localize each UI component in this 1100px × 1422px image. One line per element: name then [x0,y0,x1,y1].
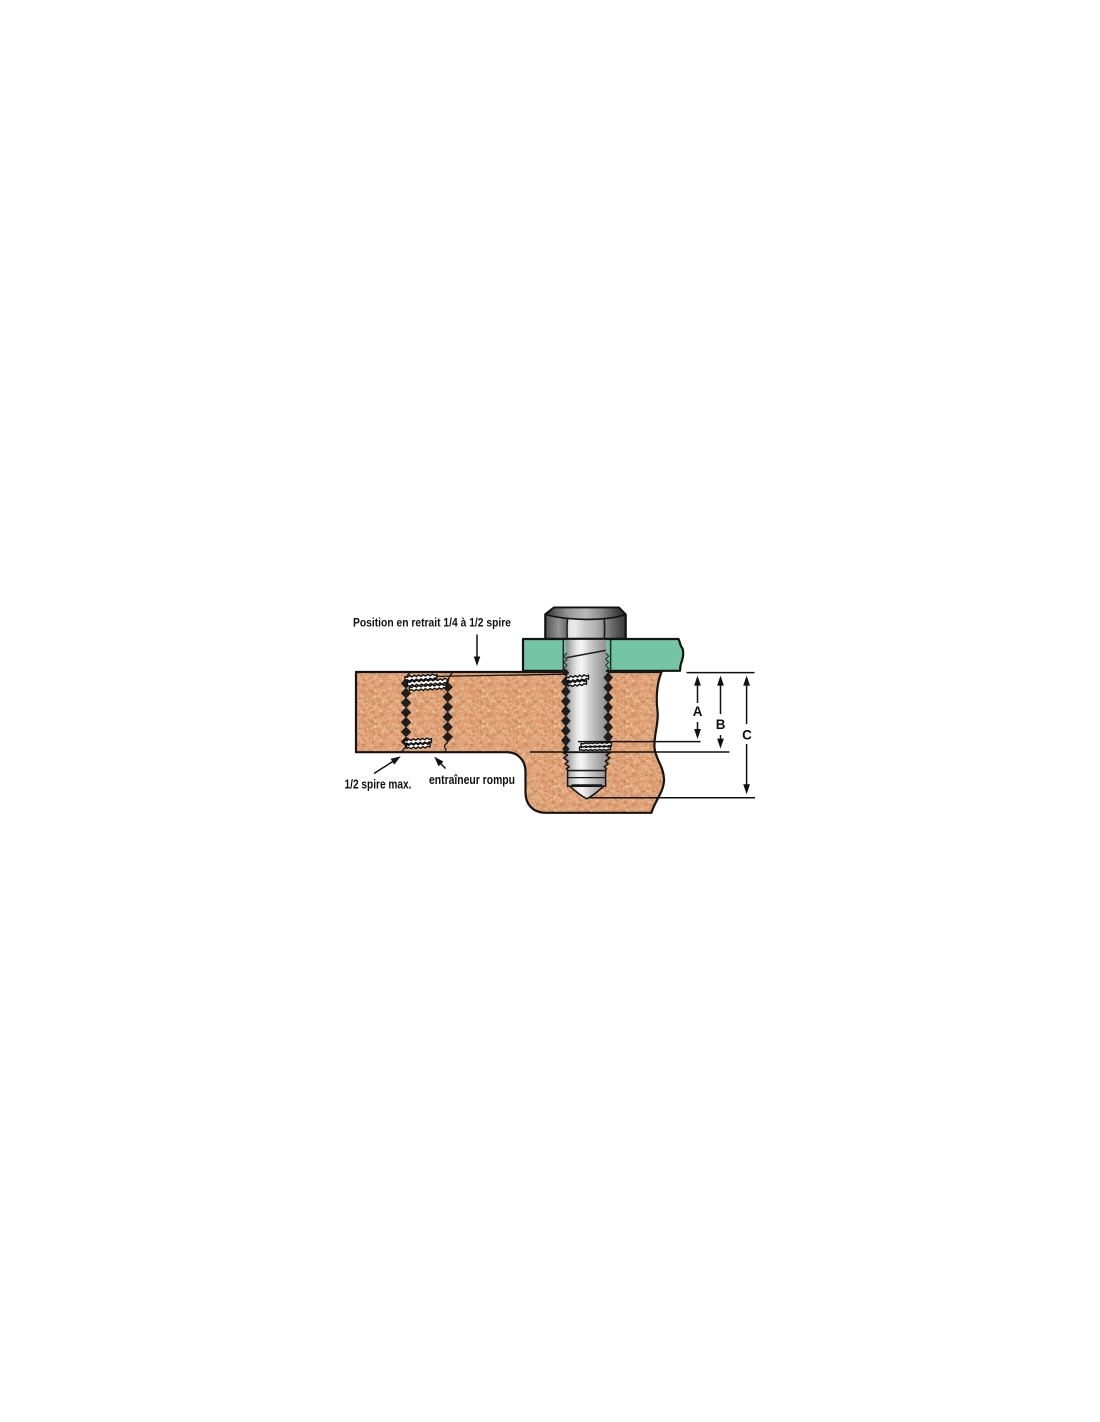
svg-text:A: A [693,704,703,719]
svg-text:entraîneur rompu: entraîneur rompu [429,773,515,787]
svg-text:C: C [742,728,752,743]
svg-text:Position en retrait 1/4 à 1/2: Position en retrait 1/4 à 1/2 spire [353,616,511,630]
svg-text:B: B [716,717,726,732]
svg-text:1/2 spire max.: 1/2 spire max. [345,778,412,792]
